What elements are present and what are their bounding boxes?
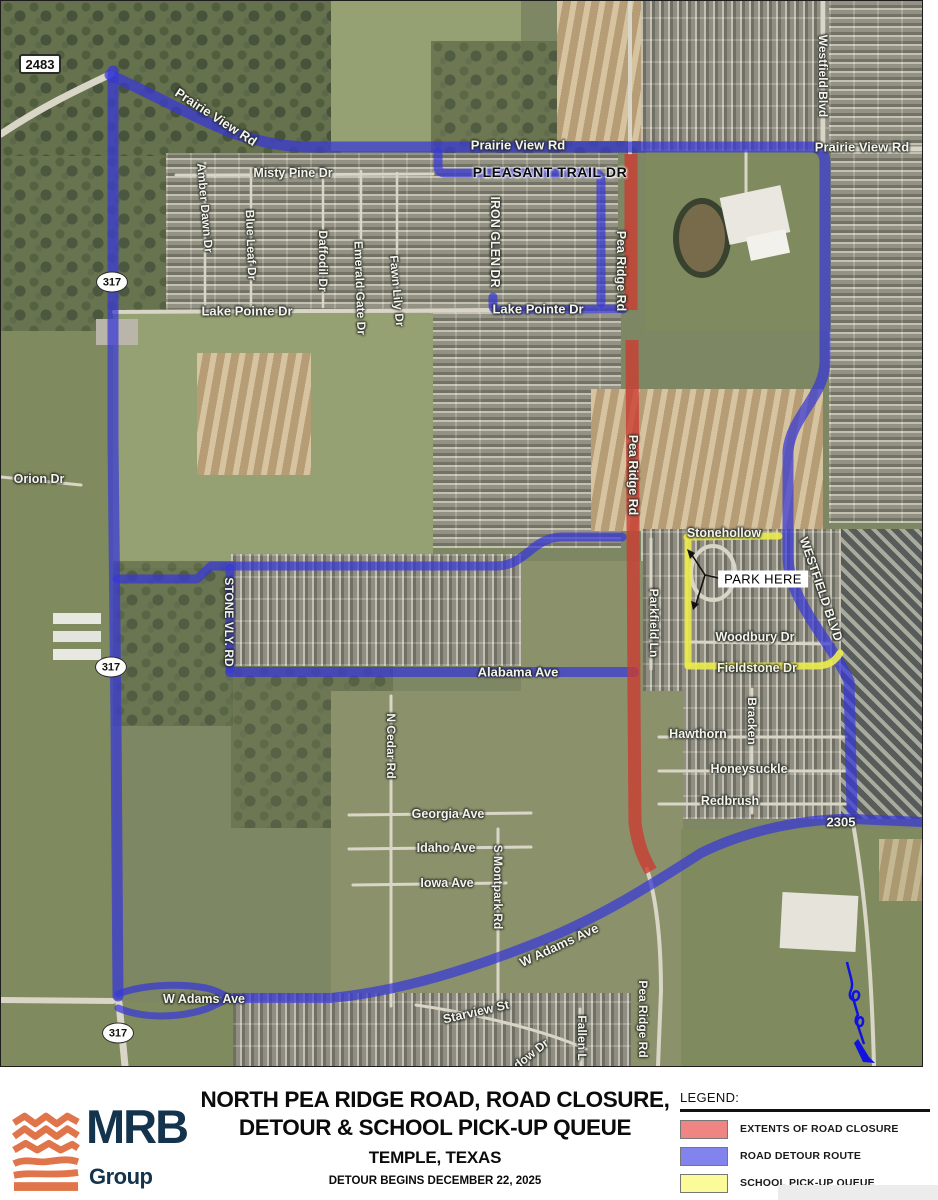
street-label-honeysuckle: Honeysuckle [710, 762, 787, 776]
street-label-stone-vly-rd: STONE VLY. RD [222, 577, 236, 666]
street-label-daffodil-dr: Daffodil Dr [316, 230, 330, 291]
park-here-callout: PARK HERE [718, 571, 808, 588]
legend-item-closure: EXTENTS OF ROAD CLOSURE [680, 1120, 930, 1139]
street-label-hawthorn: Hawthorn [669, 727, 727, 741]
street-label-alabama-ave: Alabama Ave [478, 665, 559, 680]
detour-swatch [680, 1147, 728, 1166]
street-label-orion-dr: Orion Dr [14, 472, 65, 486]
street-label-s-montpark-rd: S Montpark Rd [491, 845, 505, 930]
legend-rule [680, 1109, 930, 1112]
street-label-pea-ridge-rd-mid: Pea Ridge Rd [626, 435, 640, 516]
street-label-prairie-view-mid: Prairie View Rd [471, 138, 565, 153]
street-label-iron-glen-dr: IRON GLEN DR [488, 197, 502, 288]
map-title: NORTH PEA RIDGE ROAD, ROAD CLOSURE, DETO… [180, 1086, 690, 1187]
track-field [676, 201, 728, 275]
satellite-map[interactable]: Prairie View RdPrairie View RdPrairie Vi… [0, 0, 923, 1067]
street-label-redbrush: Redbrush [701, 794, 759, 808]
street-label-pea-ridge-rd-n: Pea Ridge Rd [614, 231, 628, 312]
title-detour-date: DETOUR BEGINS DECEMBER 22, 2025 [180, 1175, 690, 1187]
street-label-lake-pointe-dr-e: Lake Pointe Dr [492, 302, 583, 317]
street-label-pleasant-trail-dr: PLEASANT TRAIL DR [473, 164, 628, 180]
street-label-georgia-ave: Georgia Ave [412, 807, 485, 821]
street-label-westfield-blvd-n: Westfield Blvd [816, 35, 830, 117]
street-label-lake-pointe-dr-w: Lake Pointe Dr [201, 304, 292, 319]
street-label-blue-leaf-dr: Blue Leaf Dr [243, 209, 259, 280]
street-label-fieldstone-dr: Fieldstone Dr [717, 661, 797, 675]
legend-title: LEGEND: [680, 1090, 930, 1105]
street-label-idaho-ave: Idaho Ave [417, 841, 476, 855]
street-label-fallen-ln: Fallen L [575, 1015, 589, 1060]
street-label-bracken: Bracken [745, 697, 759, 744]
mrb-logo-text: MRB [86, 1108, 187, 1147]
street-label-woodbury-dr: Woodbury Dr [716, 630, 795, 644]
viewer-gray-strip [778, 1185, 938, 1200]
street-label-fm-2305: 2305 [827, 815, 856, 830]
title-city: TEMPLE, TEXAS [180, 1148, 690, 1168]
highway-shield-sh-317-south: 317 [102, 1023, 134, 1044]
highway-shield-sh-317-mid: 317 [95, 657, 127, 678]
highway-shield-sh-317-north: 317 [96, 272, 128, 293]
street-label-n-cedar-rd: N Cedar Rd [384, 713, 398, 778]
street-label-iowa-ave: Iowa Ave [420, 876, 473, 890]
queue-swatch [680, 1174, 728, 1193]
street-label-misty-pine-dr: Misty Pine Dr [253, 166, 332, 180]
legend-item-detour: ROAD DETOUR ROUTE [680, 1147, 930, 1166]
closure-swatch [680, 1120, 728, 1139]
street-label-parkfield-ln: Parkfield Ln [647, 589, 661, 658]
legend: LEGEND: EXTENTS OF ROAD CLOSURE ROAD DET… [680, 1090, 930, 1193]
mrb-logo-icon [12, 1112, 80, 1196]
arrowhead [691, 601, 699, 610]
street-label-stonehollow: Stonehollow [687, 526, 761, 540]
mrb-logo-subtext: Group [89, 1164, 153, 1190]
highway-shield-fm-2483: 2483 [19, 54, 61, 74]
title-line-2: DETOUR & SCHOOL PICK-UP QUEUE [180, 1114, 690, 1142]
road-closure-exhibit: Prairie View RdPrairie View RdPrairie Vi… [0, 0, 938, 1200]
street-label-pea-ridge-rd-s: Pea Ridge Rd [636, 980, 650, 1057]
routes-overlay [1, 1, 922, 1066]
school-building-south [780, 892, 859, 952]
street-label-prairie-view-east: Prairie View Rd [815, 140, 909, 155]
title-block: MRB Group NORTH PEA RIDGE ROAD, ROAD CLO… [0, 1068, 938, 1200]
title-line-1: NORTH PEA RIDGE ROAD, ROAD CLOSURE, [180, 1086, 690, 1114]
street-label-w-adams-ave-w: W Adams Ave [163, 992, 245, 1006]
